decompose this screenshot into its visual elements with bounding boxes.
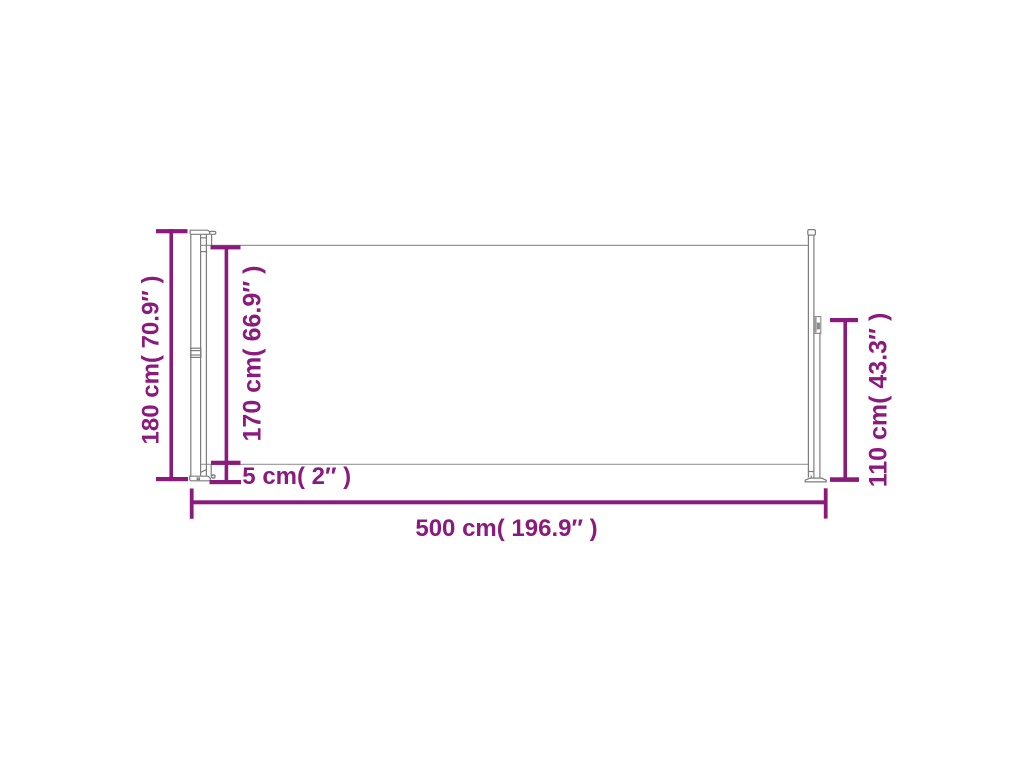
svg-text:110 cm( 43.3″ ): 110 cm( 43.3″ ) <box>864 313 892 488</box>
svg-text:500 cm( 196.9″ ): 500 cm( 196.9″ ) <box>415 515 597 542</box>
svg-text:170 cm( 66.9″ ): 170 cm( 66.9″ ) <box>238 266 266 442</box>
svg-text:5 cm( 2″ ): 5 cm( 2″ ) <box>242 463 351 490</box>
svg-text:180 cm( 70.9″ ): 180 cm( 70.9″ ) <box>137 276 164 445</box>
